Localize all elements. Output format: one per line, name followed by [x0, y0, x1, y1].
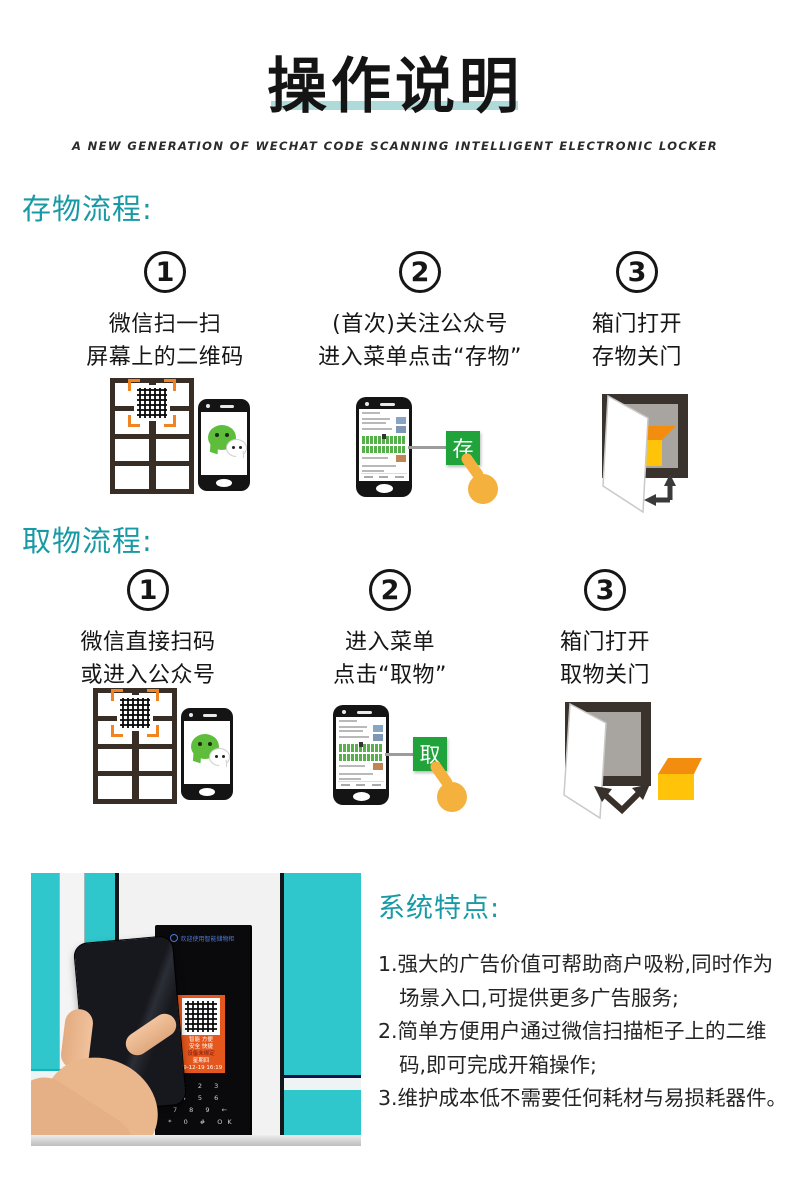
poster-page: 操作说明 A NEW GENERATION OF WECHAT CODE SCA… [0, 0, 790, 1204]
step-number-text: 2 [411, 257, 430, 288]
step-number-text: 3 [596, 575, 615, 606]
scan-corner-icon [147, 689, 159, 701]
scan-corner-icon [164, 379, 176, 391]
phone-home-button [216, 479, 232, 487]
screen-text-line [362, 418, 390, 420]
photo-floor [31, 1135, 361, 1146]
feature-item-line: 码,即可完成开箱操作; [378, 1049, 790, 1083]
screen-text-line [339, 720, 357, 722]
photo-frame-line [280, 873, 284, 1146]
screen-text-line [339, 773, 373, 775]
wechat-phone-illustration [181, 708, 233, 800]
screen-text-line [339, 726, 367, 728]
phone-speaker [220, 405, 234, 408]
phone-speaker [357, 711, 372, 714]
features-heading: 系统特点: [378, 886, 500, 925]
screen-bottom-menu [338, 781, 384, 787]
phone-speaker [203, 714, 217, 717]
locker-cell [156, 439, 190, 462]
screen-text-line [362, 457, 388, 459]
grid-marker [359, 742, 363, 747]
phone-home-button [199, 788, 215, 796]
photo-door-seam [284, 1078, 361, 1090]
grid-marker [382, 434, 386, 439]
screen-thumbnail [396, 426, 406, 433]
wechat-eye [208, 742, 212, 746]
screen-bottom-menu [361, 473, 407, 479]
panel-text-line: 智能 方便 [177, 1037, 225, 1044]
locker-cell [98, 776, 132, 799]
step-number-text: 1 [139, 575, 158, 606]
scan-corner-icon [147, 725, 159, 737]
panel-text-line: 设备未绑定 [177, 1051, 225, 1058]
scan-corner-icon [164, 415, 176, 427]
wechat-phone-illustration [198, 399, 250, 491]
phone-camera-dot [365, 402, 369, 406]
wechat-eye [215, 433, 219, 437]
product-photo: 欢迎使用智能储物柜 智能 方便 安全 快捷 设备未绑定 星期四 19-12-19… [31, 873, 361, 1146]
deposit-step3-number: 3 [616, 251, 658, 293]
wechat-eye [215, 755, 218, 758]
wechat-eye [222, 755, 225, 758]
screen-text-line [362, 422, 386, 424]
screen-text-line [362, 428, 392, 430]
page-subtitle: A NEW GENERATION OF WECHAT CODE SCANNING… [0, 139, 790, 153]
screen-thumbnail [373, 763, 383, 770]
locker-cell [139, 749, 173, 772]
deposit-step2-number: 2 [399, 251, 441, 293]
step-number-text: 3 [628, 257, 647, 288]
phone-camera-dot [206, 404, 210, 408]
screen-thumbnail [396, 417, 406, 424]
wechat-eye [225, 433, 229, 437]
phone-screen [184, 721, 230, 784]
scan-corner-icon [111, 725, 123, 737]
hand-pointer-icon [427, 760, 475, 814]
scan-corner-icon [128, 415, 140, 427]
retrieve-step3-caption-line1: 箱门打开 [455, 624, 755, 656]
scan-corner-icon [128, 379, 140, 391]
panel-qr-card: 智能 方便 安全 快捷 设备未绑定 星期四 19-12-19 16:19 [177, 995, 225, 1073]
phone-camera-dot [342, 710, 346, 714]
phone-home-button [353, 792, 370, 801]
phone-screen [201, 412, 247, 475]
wechat-eye [232, 446, 235, 449]
feature-item-line: 1.强大的广告价值可帮助商户吸粉,同时作为 [378, 948, 790, 982]
locker-cell [115, 466, 149, 489]
retrieve-step3-caption-line2: 取物关门 [455, 657, 755, 689]
app-phone-illustration [356, 397, 412, 497]
screen-text-line [339, 765, 365, 767]
locker-cell [139, 776, 173, 799]
screen-thumbnail [373, 734, 383, 741]
screen-text-line [339, 778, 361, 780]
wechat-icon-small-bubble [209, 748, 230, 766]
locker-map-grid [339, 744, 383, 761]
screen-text-line [362, 465, 396, 467]
screen-text-line [339, 736, 369, 738]
phone-speaker [380, 403, 395, 406]
locker-cell [115, 439, 149, 462]
app-phone-illustration [333, 705, 389, 805]
hand-pointer-icon [458, 452, 506, 506]
panel-qr-code [182, 998, 220, 1035]
feature-item-line: 场景入口,可提供更多广告服务; [378, 982, 790, 1016]
app-screen [359, 409, 409, 481]
screen-thumbnail [373, 725, 383, 732]
feature-item-line: 2.简单方便用户通过微信扫描柜子上的二维 [378, 1015, 790, 1049]
feature-item-line: 3.维护成本低不需要任何耗材与易损耗器件。 [378, 1082, 790, 1116]
wechat-eye [198, 742, 202, 746]
retrieve-heading: 取物流程: [22, 518, 153, 560]
retrieve-step1-number: 1 [127, 569, 169, 611]
panel-text-line: 星期四 [177, 1058, 225, 1065]
screen-text-line [362, 470, 384, 472]
page-title: 操作说明 [0, 38, 790, 125]
step-number-text: 1 [156, 257, 175, 288]
screen-thumbnail [396, 455, 406, 462]
features-list: 1.强大的广告价值可帮助商户吸粉,同时作为 场景入口,可提供更多广告服务; 2.… [378, 948, 790, 1116]
wechat-eye [239, 446, 242, 449]
deposit-step3-caption-line1: 箱门打开 [487, 306, 787, 338]
keypad-row: * 0 # OK [155, 1116, 250, 1128]
screen-text-line [362, 412, 380, 414]
locker-qr-code [134, 385, 170, 421]
deposit-step3-caption-line2: 存物关门 [487, 339, 787, 371]
retrieve-step2-number: 2 [369, 569, 411, 611]
deposit-heading: 存物流程: [22, 186, 153, 228]
deposit-step1-number: 1 [144, 251, 186, 293]
wechat-icon-small-bubble [226, 439, 247, 457]
screen-text-line [339, 730, 363, 732]
step-number-text: 2 [381, 575, 400, 606]
door-open-take-icon [556, 696, 706, 821]
locker-cell [98, 749, 132, 772]
phone-camera-dot [189, 713, 193, 717]
phone-home-button [376, 484, 393, 493]
retrieve-step3-number: 3 [584, 569, 626, 611]
locker-qr-code [117, 695, 153, 731]
door-open-store-icon [582, 388, 697, 518]
panel-text-line: 安全 快捷 [177, 1044, 225, 1051]
connector-line [408, 446, 448, 449]
connector-line [385, 753, 415, 756]
scan-corner-icon [111, 689, 123, 701]
app-screen [336, 717, 386, 789]
locker-map-grid [362, 436, 406, 453]
locker-cell [156, 466, 190, 489]
